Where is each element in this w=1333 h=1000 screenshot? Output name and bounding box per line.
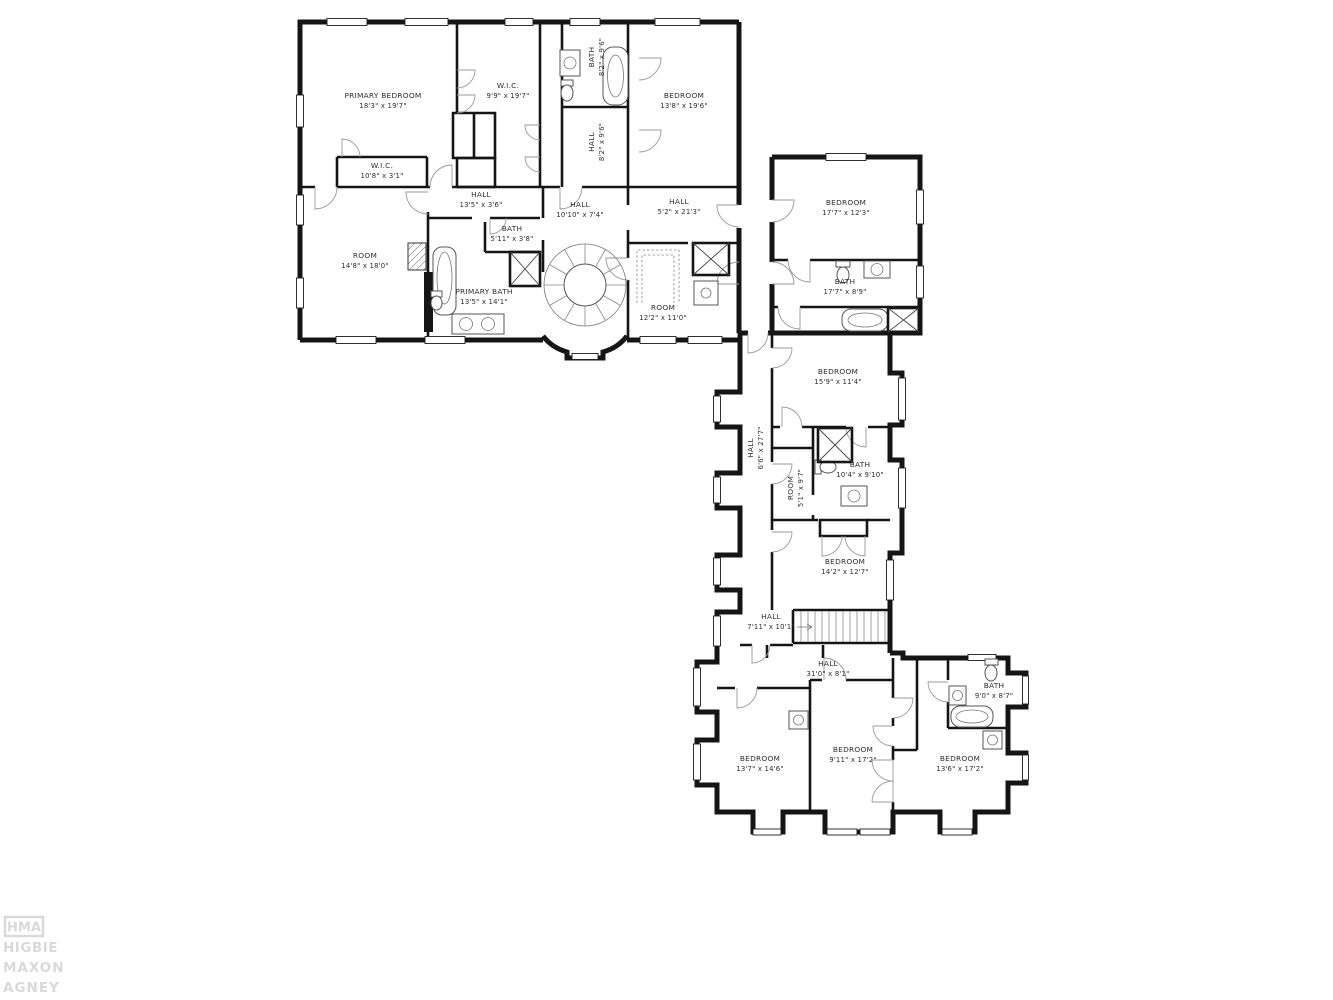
svg-text:HALL: HALL: [570, 200, 590, 209]
svg-text:14'2" x 12'7": 14'2" x 12'7": [821, 568, 869, 576]
svg-text:BATH: BATH: [984, 681, 1005, 690]
room-label-wic-1: W.I.C.9'9" x 19'7": [487, 81, 530, 100]
svg-text:ROOM: ROOM: [651, 303, 675, 312]
svg-text:9'9" x 19'7": 9'9" x 19'7": [487, 92, 530, 100]
svg-text:HMA: HMA: [7, 921, 41, 936]
shaft-icon: [510, 252, 540, 286]
svg-text:HALL: HALL: [818, 659, 838, 668]
room-label-room-148: ROOM14'8" x 18'0": [341, 251, 389, 270]
svg-text:9'0" x 8'7": 9'0" x 8'7": [975, 692, 1013, 700]
spiral-staircase: [544, 244, 626, 326]
svg-text:BEDROOM: BEDROOM: [740, 754, 780, 763]
svg-text:6'6" x 27'7": 6'6" x 27'7": [757, 427, 765, 470]
room-label-bedroom-b: BEDROOM17'7" x 12'3": [822, 198, 870, 217]
room-labels: PRIMARY BEDROOM18'3" x 19'7" W.I.C.9'9" …: [341, 38, 1013, 773]
svg-text:HALL: HALL: [746, 437, 755, 457]
svg-text:13'7" x 14'6": 13'7" x 14'6": [736, 765, 784, 773]
svg-text:5'1" x 9'7": 5'1" x 9'7": [797, 469, 805, 507]
room-label-room-122: ROOM12'2" x 11'0": [639, 303, 687, 322]
svg-text:5'2" x 21'3": 5'2" x 21'3": [658, 208, 701, 216]
svg-text:HIGBIE: HIGBIE: [3, 940, 58, 956]
room-label-bath-strip: BATH8'2" x 9'6": [587, 38, 606, 76]
svg-text:PRIMARY BEDROOM: PRIMARY BEDROOM: [344, 91, 421, 100]
svg-text:ROOM: ROOM: [353, 251, 377, 260]
svg-text:12'2" x 11'0": 12'2" x 11'0": [639, 314, 687, 322]
svg-text:PRIMARY BATH: PRIMARY BATH: [455, 287, 512, 296]
vanity-icon: [560, 50, 580, 76]
shaft-icon: [693, 243, 729, 275]
svg-text:BEDROOM: BEDROOM: [833, 745, 873, 754]
svg-text:13'5" x 3'6": 13'5" x 3'6": [460, 201, 503, 209]
svg-text:14'8" x 18'0": 14'8" x 18'0": [341, 262, 389, 270]
room-label-hall-711: HALL7'11" x 10'1": [747, 612, 795, 631]
svg-text:BEDROOM: BEDROOM: [940, 754, 980, 763]
bathtub-icon: [951, 706, 993, 727]
room-label-hall-strip: HALL8'2" x 9'6": [587, 123, 606, 161]
sink-icon: [841, 486, 867, 506]
svg-text:13'8" x 19'6": 13'8" x 19'6": [660, 102, 708, 110]
room-label-hall-52: HALL5'2" x 21'3": [658, 197, 701, 216]
sink-icon: [694, 281, 718, 305]
sink-icon: [789, 711, 808, 729]
svg-text:BATH: BATH: [587, 47, 596, 68]
room-label-primary-bath: PRIMARY BATH13'5" x 14'1": [455, 287, 512, 306]
floor-plan-page: PRIMARY BEDROOM18'3" x 19'7" W.I.C.9'9" …: [0, 0, 1333, 1000]
toilet-icon: [836, 261, 850, 267]
svg-text:17'7" x 8'9": 17'7" x 8'9": [824, 288, 867, 296]
svg-text:15'9" x 11'4": 15'9" x 11'4": [814, 378, 862, 386]
svg-text:BEDROOM: BEDROOM: [664, 91, 704, 100]
svg-text:8'2" x 9'6": 8'2" x 9'6": [598, 123, 606, 161]
svg-text:BEDROOM: BEDROOM: [818, 367, 858, 376]
toilet-icon: [985, 659, 998, 665]
svg-text:HALL: HALL: [761, 612, 781, 621]
svg-text:8'2" x 9'6": 8'2" x 9'6": [598, 38, 606, 76]
room-label-bath-b: BATH17'7" x 8'9": [824, 277, 867, 296]
svg-text:BEDROOM: BEDROOM: [825, 557, 865, 566]
svg-text:10'8" x 3'1": 10'8" x 3'1": [361, 172, 404, 180]
straight-staircase: [797, 612, 885, 642]
svg-text:HALL: HALL: [471, 190, 491, 199]
svg-text:13'5" x 14'1": 13'5" x 14'1": [460, 298, 508, 306]
shaft-icon: [818, 428, 852, 462]
svg-text:ROOM: ROOM: [786, 476, 795, 500]
sink-icon: [949, 686, 966, 705]
svg-text:7'11" x 10'1": 7'11" x 10'1": [747, 623, 795, 631]
floor-plan-svg: PRIMARY BEDROOM18'3" x 19'7" W.I.C.9'9" …: [0, 0, 1333, 1000]
svg-text:MAXON: MAXON: [3, 960, 65, 976]
room-label-hall-66: HALL6'6" x 27'7": [746, 427, 765, 470]
room-label-bath-511: BATH5'11" x 3'8": [491, 224, 534, 243]
svg-text:13'6" x 17'2": 13'6" x 17'2": [936, 765, 984, 773]
bathtub-icon: [842, 309, 888, 331]
svg-text:18'3" x 19'7": 18'3" x 19'7": [359, 102, 407, 110]
room-label-primary-bedroom: PRIMARY BEDROOM18'3" x 19'7": [344, 91, 421, 110]
room-label-bedroom-137: BEDROOM13'7" x 14'6": [736, 754, 784, 773]
svg-text:BATH: BATH: [850, 460, 871, 469]
watermark-logo: HMA HIGBIE MAXON AGNEY: [3, 917, 65, 996]
bathtub-icon: [603, 47, 628, 105]
room-label-bedroom-a: BEDROOM13'8" x 19'6": [660, 91, 708, 110]
svg-text:31'0" x 8'1": 31'0" x 8'1": [807, 670, 850, 678]
room-label-bedroom-136: BEDROOM13'6" x 17'2": [936, 754, 984, 773]
svg-text:W.I.C.: W.I.C.: [371, 161, 393, 170]
svg-text:AGNEY: AGNEY: [3, 980, 60, 996]
sink-icon: [983, 731, 1002, 749]
svg-text:HALL: HALL: [587, 131, 596, 151]
room-label-bedroom-159: BEDROOM15'9" x 11'4": [814, 367, 862, 386]
svg-text:10'4" x 9'10": 10'4" x 9'10": [836, 471, 884, 479]
room-label-bath-d: BATH9'0" x 8'7": [975, 681, 1013, 700]
svg-text:BATH: BATH: [835, 277, 856, 286]
svg-text:BATH: BATH: [502, 224, 523, 233]
room-label-bedroom-911: BEDROOM9'11" x 17'2": [829, 745, 877, 764]
svg-text:10'10" x 7'4": 10'10" x 7'4": [556, 211, 604, 219]
room-label-hall-1010: HALL10'10" x 7'4": [556, 200, 604, 219]
windows: [297, 19, 1029, 836]
room-label-bedroom-142: BEDROOM14'2" x 12'7": [821, 557, 869, 576]
room-label-wic-2: W.I.C.10'8" x 3'1": [361, 161, 404, 180]
svg-text:W.I.C.: W.I.C.: [497, 81, 519, 90]
svg-text:HALL: HALL: [669, 197, 689, 206]
svg-text:17'7" x 12'3": 17'7" x 12'3": [822, 209, 870, 217]
room-label-hall-135: HALL13'5" x 3'6": [460, 190, 503, 209]
svg-text:BEDROOM: BEDROOM: [826, 198, 866, 207]
shaft-icon: [888, 308, 919, 332]
svg-text:9'11" x 17'2": 9'11" x 17'2": [829, 756, 877, 764]
svg-text:5'11" x 3'8": 5'11" x 3'8": [491, 235, 534, 243]
